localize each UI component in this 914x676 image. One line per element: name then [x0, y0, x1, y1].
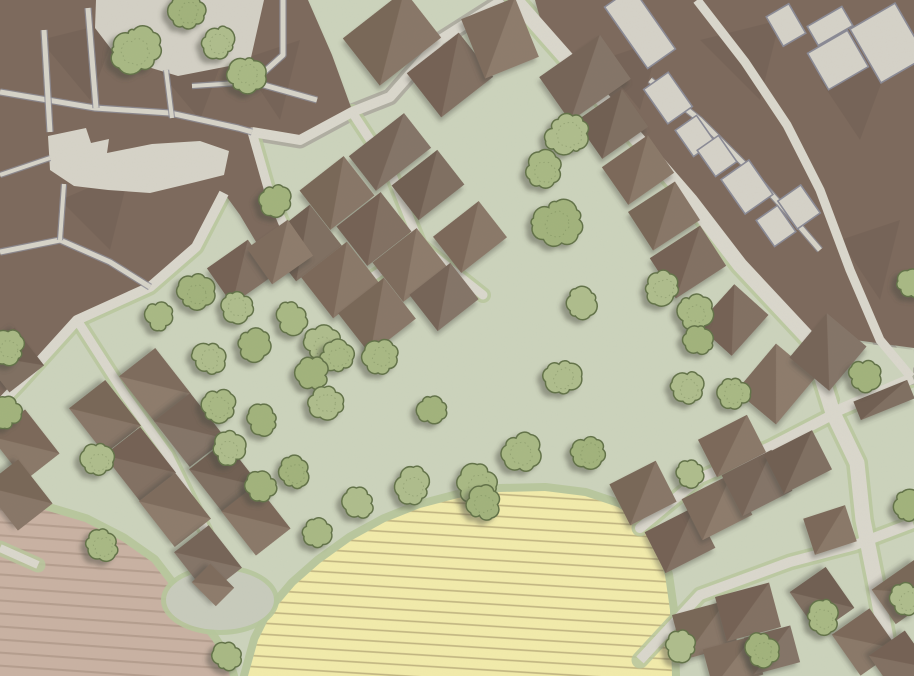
- tree-icon: [670, 372, 704, 404]
- tree-icon: [683, 326, 714, 354]
- tree-icon: [80, 443, 114, 475]
- tree-icon: [808, 599, 839, 635]
- tree-icon: [526, 150, 561, 189]
- village-map[interactable]: [0, 0, 914, 676]
- map-svg: [0, 0, 914, 676]
- tree-icon: [295, 357, 328, 390]
- tree-icon: [543, 361, 582, 394]
- tree-icon: [570, 437, 605, 470]
